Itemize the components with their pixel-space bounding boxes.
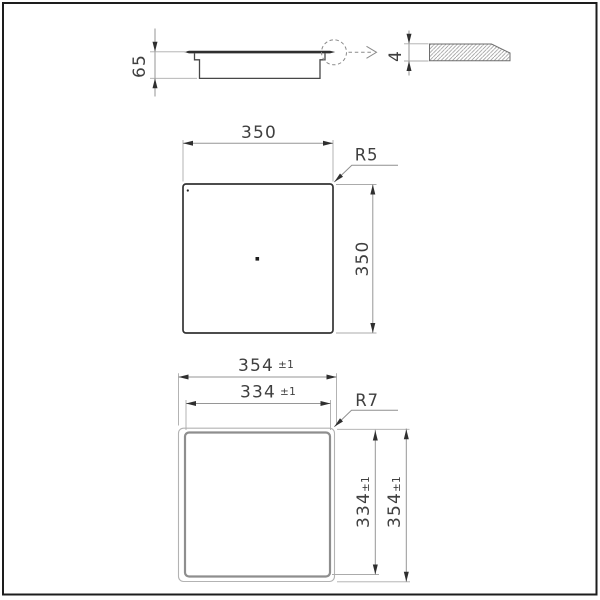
arrow-inner-depth-top — [373, 431, 378, 441]
tol-label-inner-depth: ±1 — [360, 476, 372, 492]
radius-label-r5: R5 — [355, 146, 379, 165]
dim-label-inner-width: 334 — [240, 383, 276, 403]
top-view: 350 R5 350 — [183, 123, 398, 333]
leader-r5 — [334, 165, 398, 182]
glass-section — [430, 44, 511, 61]
arrow-outer-width-right — [327, 375, 337, 380]
dim-label-thickness: 4 — [386, 50, 406, 62]
arrow-topview-width-right — [323, 141, 333, 146]
arrow-topview-depth-bottom — [370, 323, 375, 333]
recess-outline — [179, 428, 335, 581]
technical-drawing: 65 4 350 R5 35 — [0, 0, 600, 600]
dim-label-topview-width: 350 — [241, 123, 277, 143]
center-mark-dot — [256, 257, 260, 261]
arrow-inner-width-left — [186, 401, 196, 406]
arrow-side-top — [153, 42, 158, 52]
dim-label-side-height: 65 — [130, 54, 150, 78]
drawing-sheet: 65 4 350 R5 35 — [0, 0, 600, 600]
tol-label-inner-width: ±1 — [280, 386, 296, 398]
dim-label-inner-depth: 334 — [354, 492, 374, 528]
cutout-outline — [185, 433, 330, 577]
dim-label-topview-depth: 350 — [353, 240, 373, 276]
tol-label-outer-depth: ±1 — [391, 476, 403, 492]
arrow-inner-width-right — [321, 401, 331, 406]
arrow-outer-depth-top — [404, 429, 409, 439]
arrow-thickness-bottom — [407, 61, 412, 71]
dim-label-outer-width: 354 — [238, 356, 274, 376]
radius-label-r7: R7 — [355, 391, 379, 410]
cutout-view: 354 ±1 334 ±1 R7 334 ±1 354 ±1 — [179, 356, 411, 582]
arrow-outer-depth-bottom — [404, 572, 409, 582]
tol-label-outer-width: ±1 — [278, 359, 294, 371]
edge-detail-view: 4 — [386, 31, 510, 76]
arrow-topview-width-left — [183, 141, 193, 146]
leader-r7 — [334, 410, 398, 427]
arrow-outer-width-left — [179, 375, 189, 380]
dim-label-outer-depth: 354 — [385, 492, 405, 528]
side-view: 65 — [130, 29, 377, 97]
corner-mark-dot — [187, 189, 189, 191]
hob-body-profile — [195, 53, 326, 78]
arrow-thickness-top — [407, 34, 412, 44]
arrow-topview-depth-top — [370, 185, 375, 195]
glass-plate-profile — [184, 51, 335, 54]
arrow-side-bottom — [153, 78, 158, 88]
arrow-inner-depth-bottom — [373, 565, 378, 575]
